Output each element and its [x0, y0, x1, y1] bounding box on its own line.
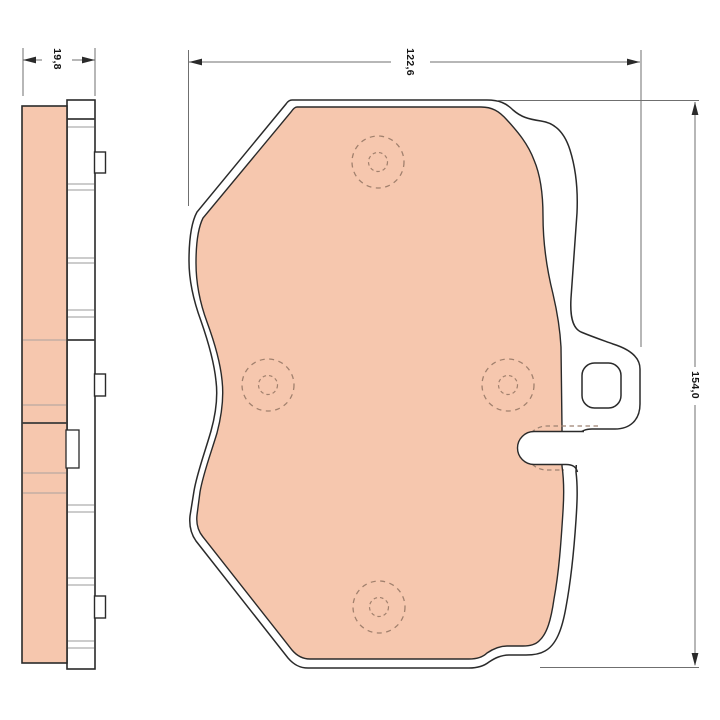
- arrow-top: [692, 102, 699, 115]
- dimension-value-height: 154,0: [688, 365, 702, 405]
- side-backing-plate: [67, 100, 95, 669]
- arrow-left: [23, 57, 36, 64]
- abutment-slot-fill: [517, 431, 585, 465]
- arrow-bottom: [692, 653, 699, 666]
- dimension-value-width: 122,6: [403, 42, 417, 82]
- side-friction-material: [22, 106, 67, 663]
- front-view: [189, 100, 640, 668]
- side-tab-middle: [95, 374, 106, 396]
- drawing-svg: [0, 0, 720, 720]
- arrow-right: [627, 59, 640, 66]
- ear-lug-hole: [582, 363, 621, 408]
- arrow-right: [82, 57, 95, 64]
- side-plate-cutout: [66, 430, 79, 468]
- dimension-value-thickness: 19,8: [50, 39, 64, 79]
- side-view: [22, 100, 106, 669]
- side-tab-top: [95, 152, 106, 173]
- side-tab-bottom: [95, 596, 106, 618]
- brake-pad-technical-drawing: 19,8 122,6 154,0: [0, 0, 720, 720]
- arrow-left: [189, 59, 202, 66]
- front-friction-material: [196, 107, 564, 659]
